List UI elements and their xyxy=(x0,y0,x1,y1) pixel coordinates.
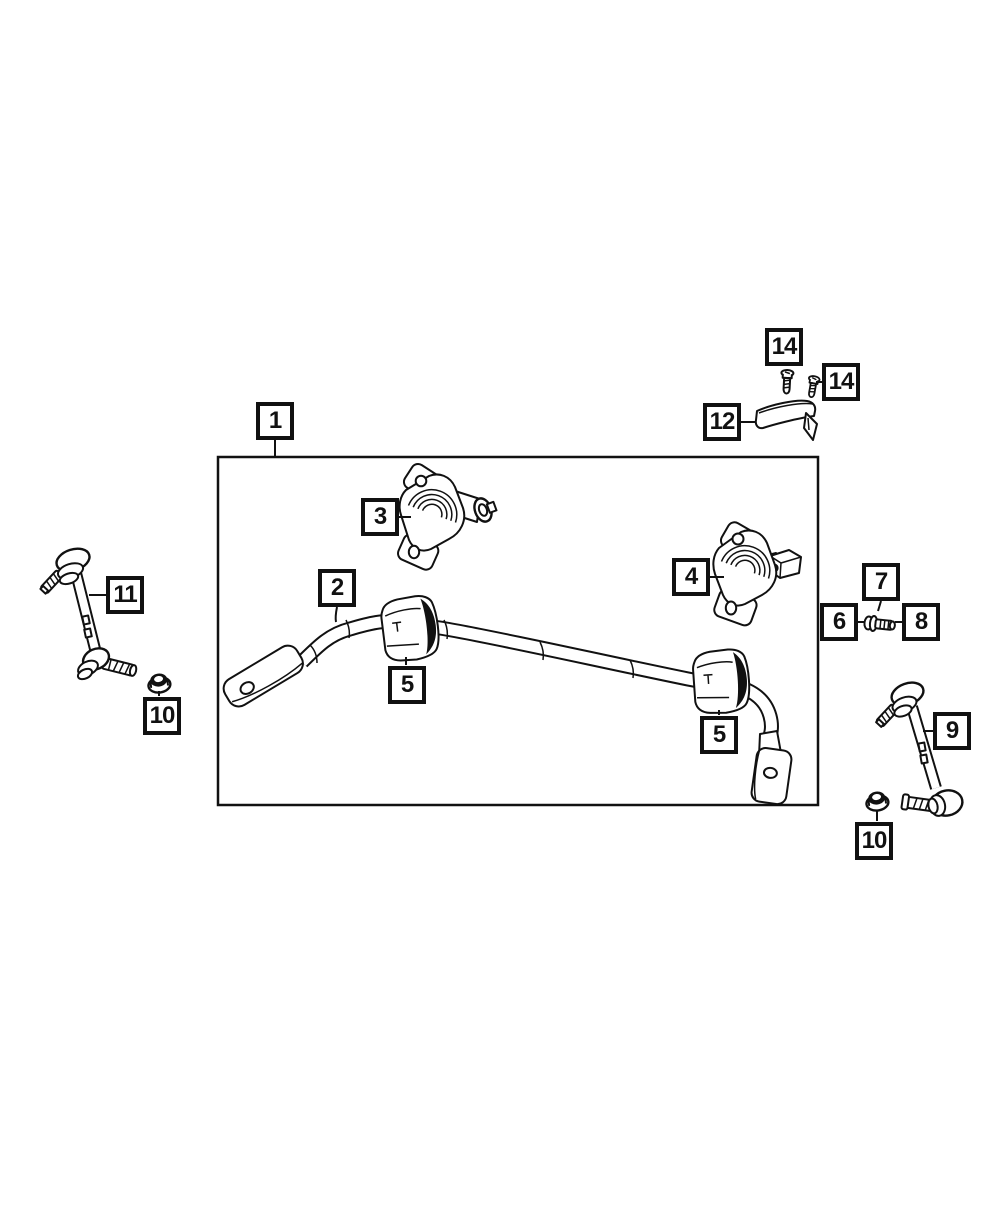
callout-label: 14 xyxy=(829,370,854,394)
callout-label: 10 xyxy=(150,704,175,728)
callout-box-9: 9 xyxy=(933,712,971,750)
callout-box-11: 11 xyxy=(106,576,144,614)
bushing-clamp-right xyxy=(692,648,751,715)
shield-screw-right xyxy=(806,375,820,398)
link-nut-right xyxy=(865,790,889,812)
parts-diagram: 1 2 3 4 5 5 6 7 8 9 10 10 11 12 14 14 xyxy=(0,0,1000,1214)
callout-box-1: 1 xyxy=(256,402,294,440)
callout-label: 7 xyxy=(875,570,887,594)
callout-label: 1 xyxy=(269,409,281,433)
callout-box-6: 6 xyxy=(820,603,858,641)
callout-box-10b: 10 xyxy=(855,822,893,860)
callout-box-2: 2 xyxy=(318,569,356,607)
callout-label: 4 xyxy=(685,565,697,589)
callout-label: 5 xyxy=(401,673,413,697)
callout-box-3: 3 xyxy=(361,498,399,536)
clamp-bolt xyxy=(864,615,896,633)
callout-label: 6 xyxy=(833,610,845,634)
callout-label: 3 xyxy=(374,505,386,529)
callout-label: 14 xyxy=(772,335,797,359)
callout-label: 11 xyxy=(113,583,136,607)
retainer-bracket-right xyxy=(712,520,801,628)
callout-box-12: 12 xyxy=(703,403,741,441)
bushing-clamp-left xyxy=(379,594,441,663)
shield-screw-top xyxy=(780,370,793,394)
bar-end-eye-right xyxy=(750,747,792,805)
shield-plate xyxy=(756,401,817,440)
leader-lines xyxy=(89,382,933,821)
callout-label: 5 xyxy=(713,723,725,747)
callout-label: 8 xyxy=(915,610,927,634)
callout-label: 12 xyxy=(710,410,735,434)
callout-box-8: 8 xyxy=(902,603,940,641)
bar-end-eye-left xyxy=(220,642,307,711)
callout-box-5a: 5 xyxy=(388,666,426,704)
callout-label: 9 xyxy=(946,719,958,743)
callout-box-10a: 10 xyxy=(143,697,181,735)
callout-box-5b: 5 xyxy=(700,716,738,754)
callout-box-14a: 14 xyxy=(765,328,803,366)
link-nut-left xyxy=(147,672,171,694)
callout-box-4: 4 xyxy=(672,558,710,596)
callout-box-14b: 14 xyxy=(822,363,860,401)
callout-label: 2 xyxy=(331,576,343,600)
callout-label: 10 xyxy=(862,829,887,853)
callout-box-7: 7 xyxy=(862,563,900,601)
